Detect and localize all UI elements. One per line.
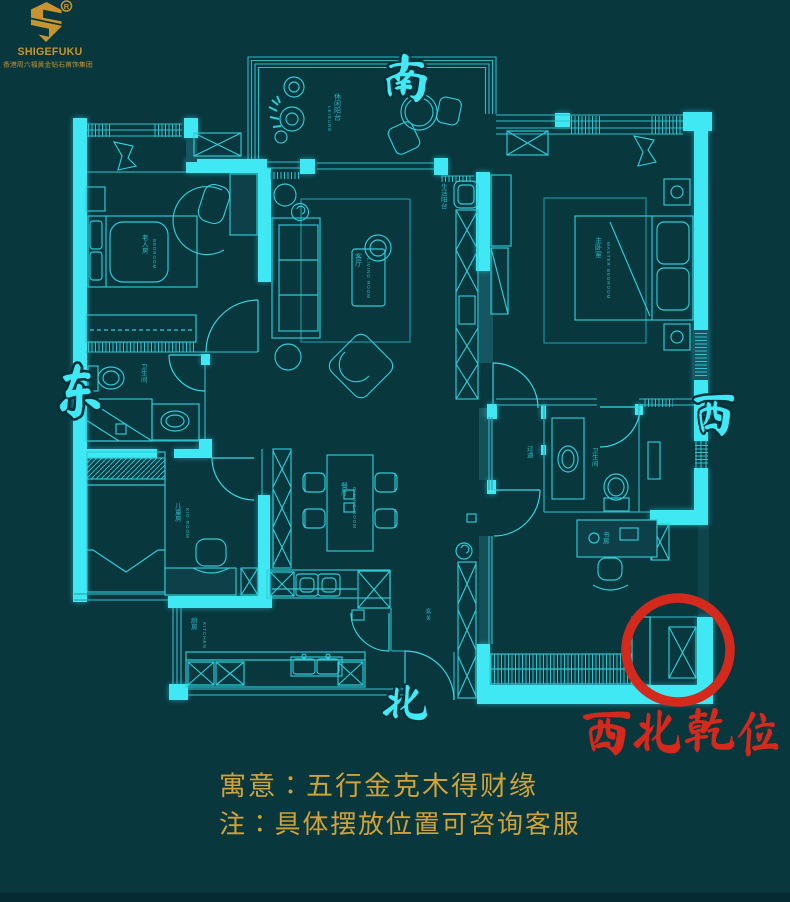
svg-text:SHIGEFUKU: SHIGEFUKU (17, 46, 82, 58)
svg-text:MASTER BEDROOM: MASTER BEDROOM (606, 242, 611, 299)
svg-text:R: R (64, 2, 70, 11)
svg-text:LIVING ROOM: LIVING ROOM (366, 258, 371, 299)
svg-text:BEDROOM: BEDROOM (152, 239, 157, 269)
svg-text:KITCHEN: KITCHEN (202, 622, 207, 649)
svg-text:LEISURE: LEISURE (327, 106, 332, 132)
svg-text:KID ROOM: KID ROOM (185, 508, 190, 539)
svg-text:DINING ROOM: DINING ROOM (352, 487, 357, 529)
